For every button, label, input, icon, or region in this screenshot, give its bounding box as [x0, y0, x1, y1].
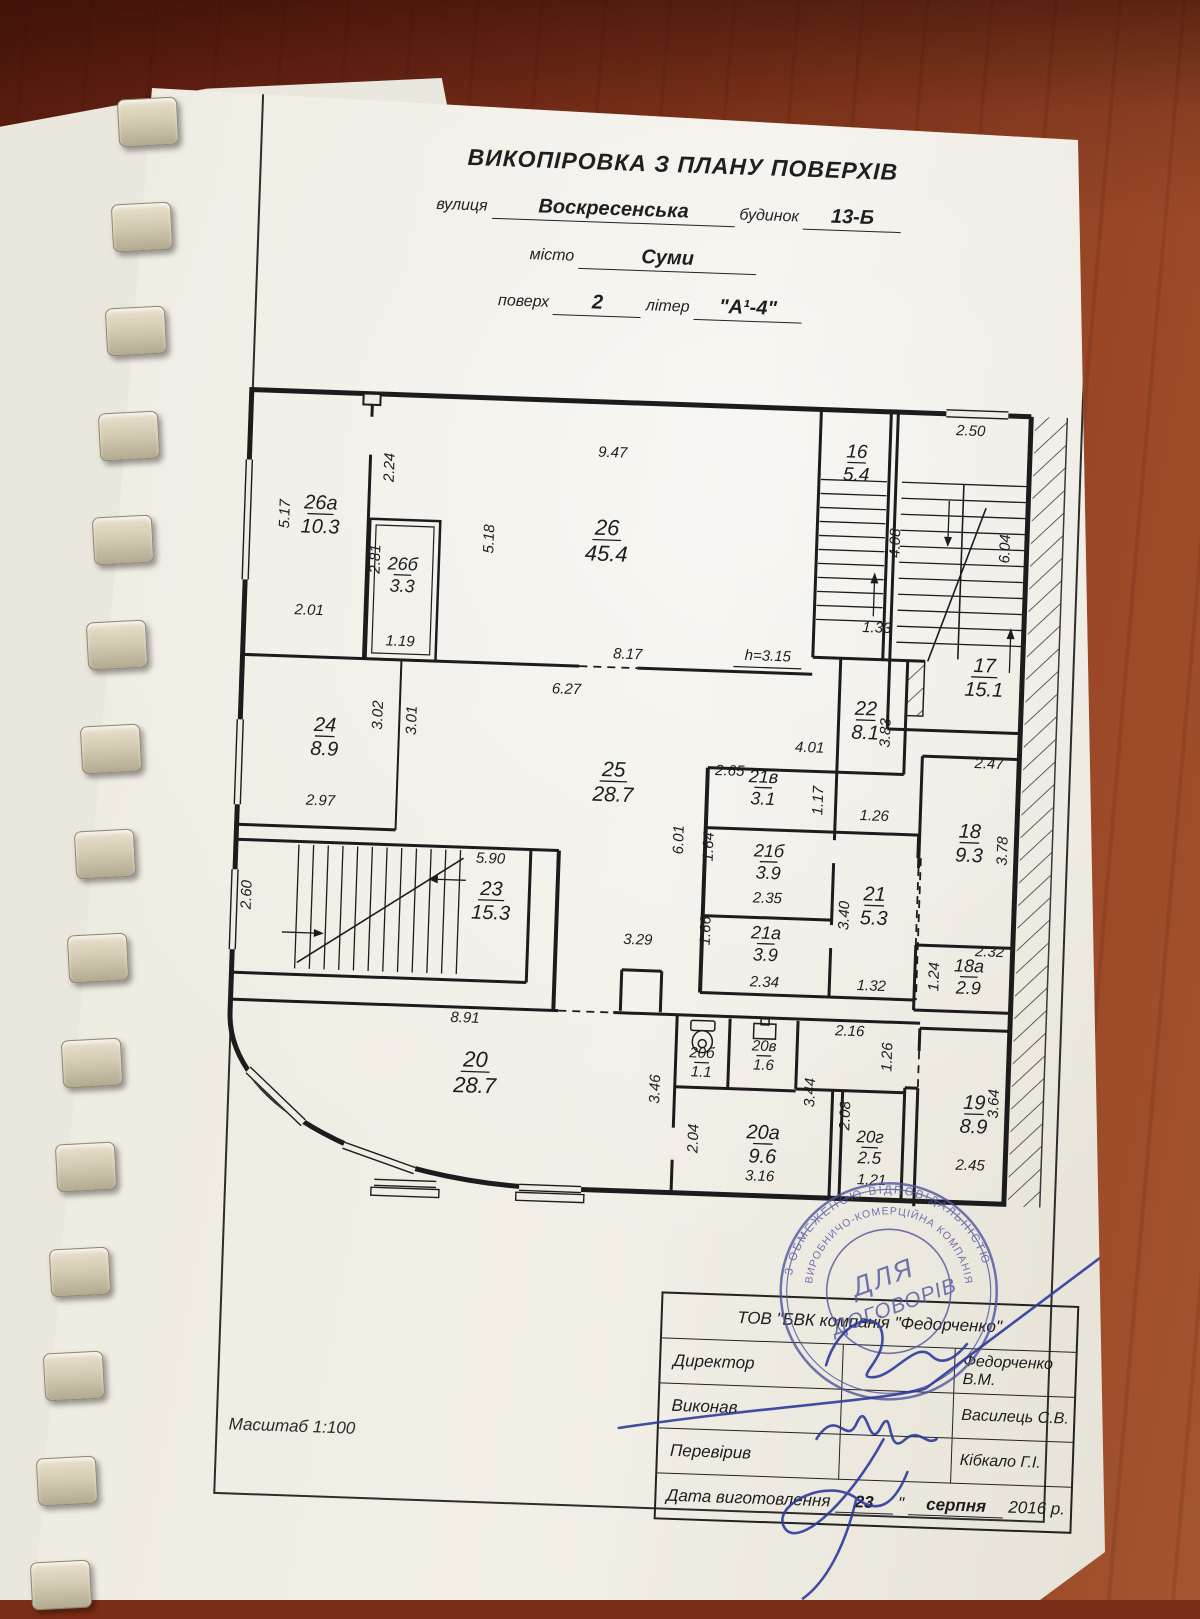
- dimension-label: 6.27: [552, 680, 582, 698]
- dimension-label: 1.33: [862, 619, 892, 637]
- sink-icon: [753, 1018, 776, 1039]
- room-number: 20в: [751, 1037, 777, 1055]
- room-area: 15.3: [471, 902, 511, 925]
- dimension-label: 2.32: [974, 943, 1005, 961]
- staircases: [281, 461, 1027, 993]
- room-area: 15.1: [964, 679, 1004, 702]
- dimension-label: 6.04: [996, 534, 1014, 564]
- binding-tooth: [67, 932, 129, 983]
- dimension-label: 5.17: [276, 498, 294, 528]
- room-number: 16: [846, 441, 868, 463]
- floor-label: поверх: [498, 292, 550, 311]
- letter-label: літер: [646, 297, 690, 316]
- binding-tooth: [42, 1350, 104, 1401]
- room-area: 5.4: [843, 464, 870, 486]
- document-header: ВИКОПІРОВКА З ПЛАНУ ПОВЕРХІВ вулиця Воск…: [318, 139, 1043, 332]
- building-value: 13-Б: [803, 205, 902, 233]
- dimension-label: 4.08: [886, 528, 904, 558]
- signature-checker: [782, 1436, 909, 1537]
- city-label: місто: [529, 246, 574, 265]
- dimension-label: 3.64: [985, 1089, 1003, 1119]
- dimension-label: 3.46: [646, 1074, 664, 1104]
- room-number: 26б: [386, 553, 419, 574]
- dimension-label: 2.35: [751, 889, 782, 907]
- room-area: 9.3: [955, 844, 984, 867]
- street-line: вулиця Воскресенська будинок 13-Б: [436, 192, 1042, 238]
- room-area: 28.7: [591, 783, 635, 807]
- room-number: 26: [594, 515, 621, 541]
- room-number: 26а: [303, 491, 338, 514]
- binding-tooth: [55, 1141, 117, 1192]
- binding-tooth: [86, 619, 148, 670]
- dimension-label: 8.91: [450, 1009, 480, 1027]
- dimension-label: 2.04: [684, 1124, 702, 1155]
- dimension-label: 1.26: [878, 1042, 896, 1072]
- room-area: 3.9: [753, 944, 779, 965]
- plan-labels: 26а10.326б3.32645.4165.41715.1228.1248.9…: [229, 398, 1026, 1193]
- binding-tooth: [36, 1455, 98, 1506]
- room-area: 8.9: [310, 738, 339, 761]
- binding-tooth: [80, 723, 142, 774]
- binding-tooth: [92, 514, 154, 565]
- dimension-label: 3.02: [369, 700, 387, 730]
- dimension-label: 2.81: [366, 544, 384, 575]
- binding-tooth: [117, 96, 179, 147]
- street-value: Воскресенська: [492, 194, 736, 227]
- binding-tooth: [73, 828, 135, 879]
- signature-executor: [816, 1415, 937, 1445]
- ink-signatures: [573, 1149, 1188, 1619]
- binding-tooth: [30, 1559, 92, 1610]
- room-number: 18: [958, 820, 981, 843]
- document-sheet: ВИКОПІРОВКА З ПЛАНУ ПОВЕРХІВ вулиця Воск…: [0, 0, 1200, 1600]
- room-number: 21а: [750, 922, 782, 943]
- room-number: 25: [601, 758, 626, 782]
- room-area: 10.3: [300, 515, 340, 538]
- room-number: 21в: [748, 766, 779, 787]
- room-number: 20: [462, 1046, 489, 1072]
- room-number: 20б: [688, 1044, 715, 1062]
- dimension-label: 5.18: [480, 523, 498, 553]
- room-number: 20г: [855, 1127, 884, 1147]
- sheet-content: ВИКОПІРОВКА З ПЛАНУ ПОВЕРХІВ вулиця Воск…: [0, 0, 1200, 1619]
- binding-tooth: [111, 201, 173, 252]
- dimension-label: 1.32: [856, 977, 886, 995]
- building-label: будинок: [739, 206, 799, 225]
- binding-tooth: [49, 1246, 111, 1297]
- room-number: 17: [973, 655, 997, 678]
- dimension-label: 2.34: [749, 973, 780, 991]
- floor-plan-drawing: 26а10.326б3.32645.4165.41715.1228.1248.9…: [208, 364, 1073, 1239]
- dimension-label: 1.19: [385, 632, 415, 650]
- room-area: 45.4: [584, 540, 628, 566]
- room-number: 20а: [745, 1121, 780, 1144]
- room-area: 5.3: [859, 907, 888, 930]
- room-number: 21б: [753, 840, 786, 861]
- city-line: місто Суми: [529, 242, 1040, 285]
- dimension-label: 3.40: [835, 900, 853, 930]
- dimension-label: 4.01: [795, 739, 825, 757]
- room-number: 24: [313, 714, 337, 737]
- dimension-label: 2.97: [305, 792, 336, 810]
- floor-value: 2: [553, 290, 642, 318]
- room-area: 1.1: [691, 1063, 712, 1081]
- binding-tooth: [104, 305, 166, 356]
- room-area: 3.9: [755, 862, 781, 883]
- dimension-label: 6.01: [670, 825, 688, 855]
- dimension-label: 3.83: [877, 717, 895, 747]
- dimension-label: 2.50: [955, 422, 986, 440]
- dimension-label: 3.01: [403, 705, 421, 735]
- dimension-label: 2.16: [834, 1022, 865, 1040]
- dimension-label: 3.78: [994, 835, 1012, 865]
- signature-stroke-long: [619, 1205, 1146, 1446]
- room-number: 21: [862, 883, 886, 906]
- dimension-label: 2.47: [973, 755, 1004, 773]
- dimension-label: 2.65: [714, 762, 745, 780]
- room-number: 19: [963, 1092, 986, 1115]
- dimension-label: 1.64: [700, 832, 718, 862]
- dimension-label: 9.47: [598, 444, 628, 462]
- dimension-label: 2.08: [836, 1100, 854, 1131]
- binding-tooth: [61, 1037, 123, 1088]
- room-area: 8.9: [959, 1116, 988, 1139]
- letter-value: "А¹-4": [694, 295, 803, 324]
- dimension-label: h=3.15: [744, 647, 792, 666]
- dimension-label: 2.01: [293, 601, 324, 619]
- room-area: 28.7: [452, 1072, 497, 1099]
- dimension-label: 3.29: [623, 931, 653, 949]
- room-area: 1.6: [753, 1056, 775, 1074]
- street-label: вулиця: [436, 196, 488, 215]
- room-area: 8.1: [851, 722, 880, 745]
- dimension-label: 5.90: [476, 850, 506, 868]
- dimension-label: 1.24: [925, 962, 943, 992]
- dimension-label: 8.17: [613, 645, 643, 663]
- city-value: Суми: [578, 244, 757, 275]
- room-number: 23: [479, 878, 503, 901]
- room-area: 3.1: [750, 788, 776, 809]
- dimension-label: 1.66: [697, 915, 715, 945]
- dimension-label: 2.24: [381, 453, 399, 484]
- dimension-label: 1.17: [809, 785, 827, 815]
- room-number: 22: [854, 698, 878, 721]
- room-area: 3.3: [389, 575, 415, 596]
- dimension-label: 2.60: [238, 879, 256, 910]
- binding-tooth: [98, 410, 160, 461]
- dimension-label: 1.26: [859, 807, 889, 825]
- room-area: 2.9: [954, 977, 981, 998]
- dimension-label: 3.44: [801, 1078, 819, 1108]
